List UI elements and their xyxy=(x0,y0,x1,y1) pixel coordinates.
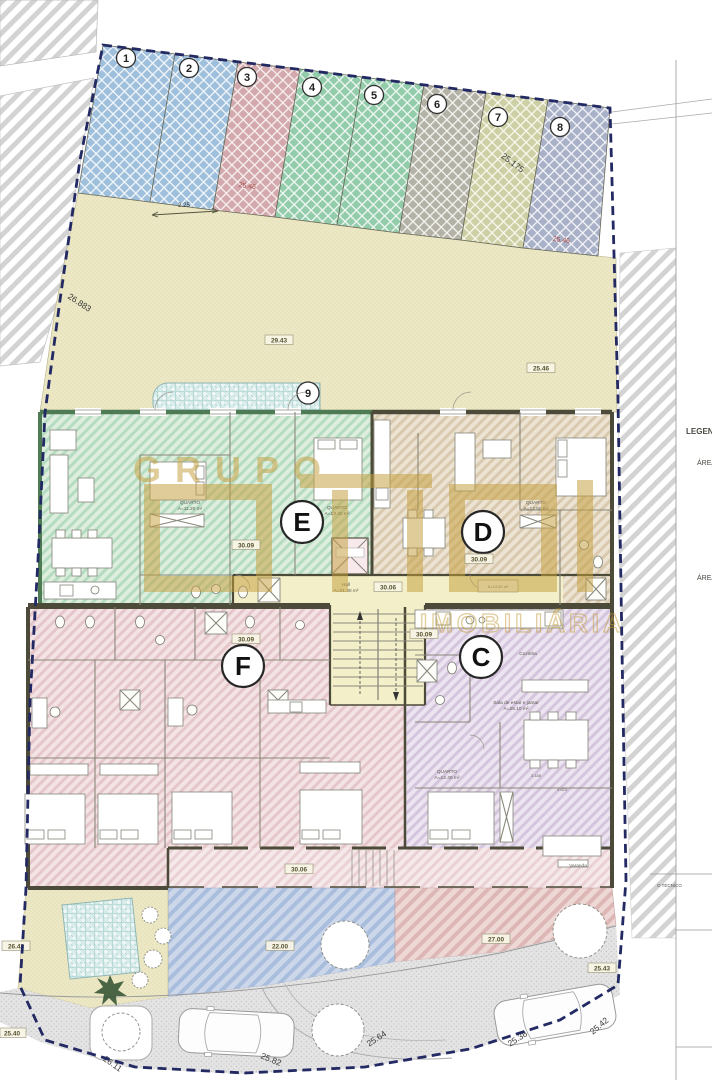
bush xyxy=(144,950,162,968)
unit-c-letter: C xyxy=(472,642,491,672)
tree xyxy=(553,904,607,958)
level-c: 30.09 xyxy=(416,631,432,638)
road-left-label: 25.40 xyxy=(4,1030,20,1037)
room-label: Varanda xyxy=(569,863,587,869)
unit-e-letter: E xyxy=(293,507,310,537)
level-f: 30.09 xyxy=(238,636,254,643)
room-area: A=25.10 m² xyxy=(504,706,529,712)
unit-d-letter: D xyxy=(474,517,493,547)
technician-label: O TÉCNICO xyxy=(657,882,682,888)
pool xyxy=(62,898,140,979)
dim-small: 3.188 xyxy=(531,773,542,778)
room-label: QUARTO xyxy=(437,769,458,775)
bush xyxy=(132,972,148,988)
room-area: A=11.20 m² xyxy=(178,506,203,512)
level-e: 30.09 xyxy=(238,542,254,549)
parking-number: 7 xyxy=(495,112,501,124)
patio-blue-label: 22.00 xyxy=(272,943,288,950)
parking-number: 6 xyxy=(434,99,440,111)
tree xyxy=(312,1004,364,1056)
road-right-label: 25.43 xyxy=(594,965,610,972)
bush xyxy=(142,907,158,923)
room-label: QUARTO xyxy=(180,500,201,506)
patio-pink-label: 27.00 xyxy=(488,936,504,943)
room-area: A=12.40 m² xyxy=(435,775,460,781)
parking-number: 2 xyxy=(186,63,192,75)
legend-title: LEGENDA xyxy=(686,427,712,436)
scale-bar-label: 2.25 xyxy=(178,203,190,209)
room-label: Cozinha xyxy=(519,651,537,657)
bush xyxy=(155,928,171,944)
legend-area-1: ÁREA xyxy=(697,458,712,467)
level-d: 30.09 xyxy=(471,556,487,563)
dim-small: 4.823 xyxy=(557,787,568,792)
parking-number: 8 xyxy=(557,122,563,134)
parking-number: 5 xyxy=(371,90,377,102)
parking-number: 3 xyxy=(244,72,250,84)
parking-number: 4 xyxy=(309,82,316,94)
level-hall: 30.06 xyxy=(380,584,396,591)
room-label: Sala de estar e jantar xyxy=(493,700,539,706)
tree xyxy=(321,921,369,969)
car-center xyxy=(178,1005,295,1061)
site-plan: 1 2 3 4 5 6 7 8 25.46 25.46 25.175 2.25 … xyxy=(0,0,712,1080)
tree xyxy=(102,1013,140,1051)
unit-f-letter: F xyxy=(235,651,251,681)
courtyard-dim-left: 29.43 xyxy=(271,337,287,344)
legend-area-2: ÁREA xyxy=(697,573,712,582)
outside-hatch-right-strip xyxy=(618,248,676,938)
parking-number-9: 9 xyxy=(305,388,311,400)
parking-number: 1 xyxy=(123,53,129,65)
level-balcony: 30.06 xyxy=(291,866,307,873)
watermark-brand2: IMOBILIÁRIA xyxy=(420,608,626,638)
courtyard-dim-right: 25.46 xyxy=(533,365,549,372)
